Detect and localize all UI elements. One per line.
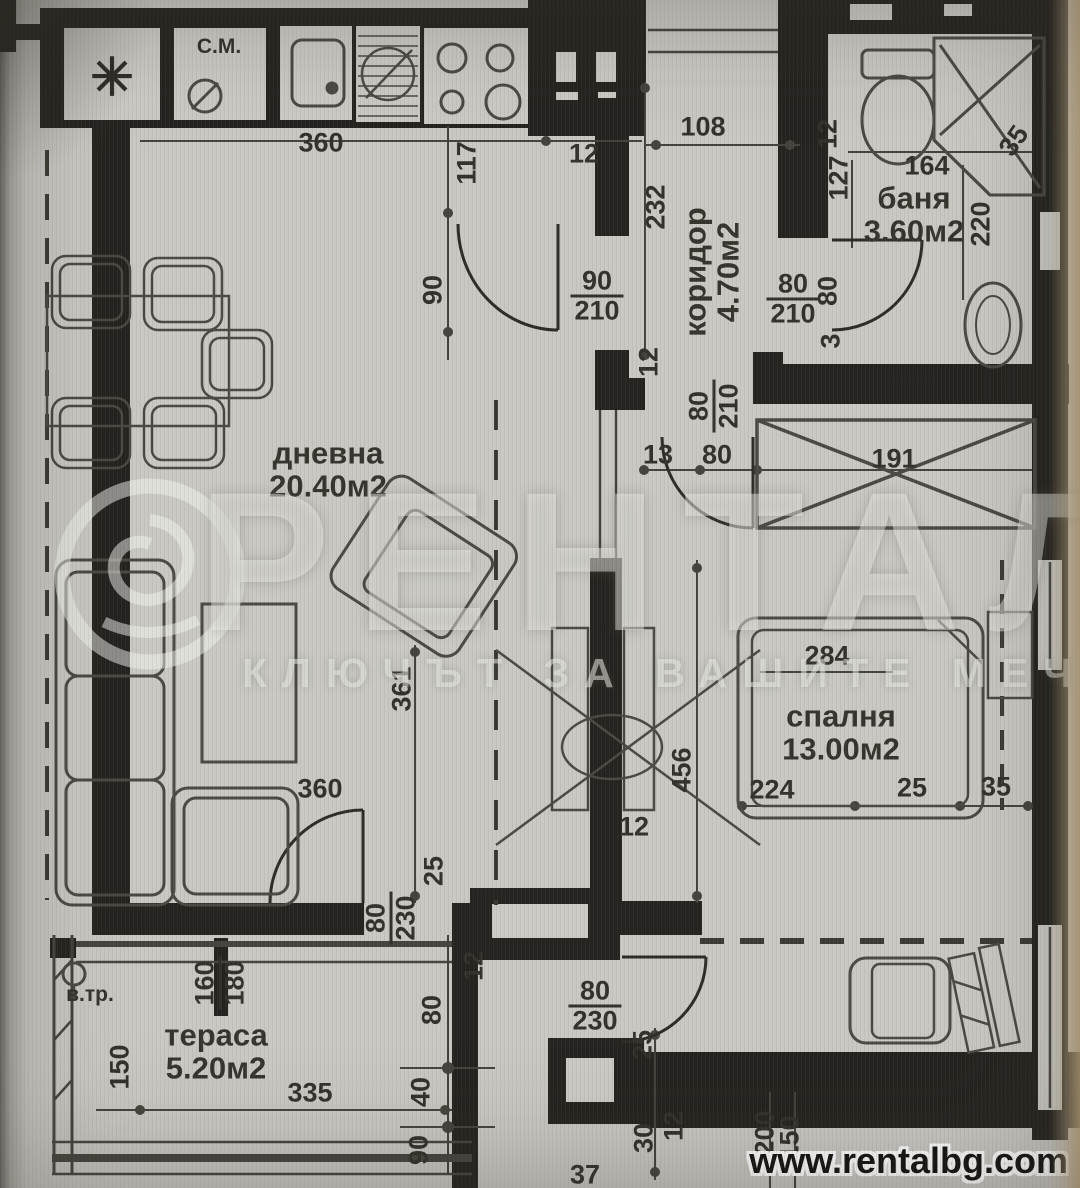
dimension-label: 232 <box>643 184 670 229</box>
dimension-label: 37 <box>570 1162 600 1188</box>
dimension-label: 80 <box>419 995 446 1025</box>
annotation-washing-machine: С.М. <box>197 35 241 59</box>
dimension-label: 80230 <box>568 978 621 1035</box>
fridge-star-icon: ✳ <box>90 48 134 108</box>
dimension-label: 150 <box>107 1044 134 1089</box>
room-label-bathroom: баня3.60м2 <box>864 182 965 249</box>
dimension-label: 90 <box>406 1135 433 1165</box>
dimension-label: 35 <box>981 774 1011 801</box>
dimension-label: 191 <box>871 446 916 473</box>
dimension-label: 12 <box>636 347 663 377</box>
room-label-corridor: коридор4.70м2 <box>679 207 746 337</box>
annotation-vtr: в.тр. <box>66 983 114 1007</box>
dimension-label: 12 <box>661 1111 688 1141</box>
website-label: www.rentalbg.com <box>749 1140 1068 1182</box>
dimension-label: 12 <box>815 119 842 149</box>
dimension-label: 361 <box>389 666 416 711</box>
dimension-label: 35 <box>994 121 1033 161</box>
dimension-label: 13 <box>643 442 673 469</box>
dimension-label: 80 <box>815 276 842 306</box>
dimension-label: 160180 <box>192 956 249 1009</box>
dimension-label: 12 <box>569 141 599 168</box>
dimension-label: 456 <box>669 747 696 792</box>
dimension-label: 25 <box>630 1030 657 1060</box>
dimension-label: 80210 <box>686 379 743 432</box>
dimension-label: 40 <box>408 1077 435 1107</box>
floor-plan-photo: дневна20.40м2спалня13.00м2баня3.60м2кори… <box>0 0 1080 1188</box>
dimension-label: 284 <box>804 643 849 670</box>
dimension-label: 220 <box>968 201 995 246</box>
room-label-bedroom: спалня13.00м2 <box>782 700 900 767</box>
dimension-label: 164 <box>904 153 949 180</box>
dimension-label: 90 <box>420 275 447 305</box>
dimension-label: 90210 <box>570 268 623 325</box>
dimension-label: 360 <box>298 130 343 157</box>
dimension-label: 80 <box>702 442 732 469</box>
dimension-label: 108 <box>680 114 725 141</box>
dimension-label: 224 <box>749 777 794 804</box>
plan-labels: дневна20.40м2спалня13.00м2баня3.60м2кори… <box>0 0 1080 1188</box>
dimension-label: 3 <box>818 333 845 348</box>
dimension-label: 360 <box>297 776 342 803</box>
room-label-living: дневна20.40м2 <box>269 437 387 504</box>
dimension-label: 12 <box>619 814 649 841</box>
dimension-label: 12 <box>461 951 488 981</box>
dimension-label: 30 <box>631 1123 658 1153</box>
dimension-label: 335 <box>287 1080 332 1107</box>
dimension-label: 80230 <box>363 891 420 944</box>
dimension-label: 117 <box>454 141 481 185</box>
dimension-label: 25 <box>897 775 927 802</box>
room-label-terrace: тераса5.20м2 <box>164 1019 267 1086</box>
dimension-label: 127 <box>826 155 853 200</box>
dimension-label: 25 <box>421 856 448 886</box>
